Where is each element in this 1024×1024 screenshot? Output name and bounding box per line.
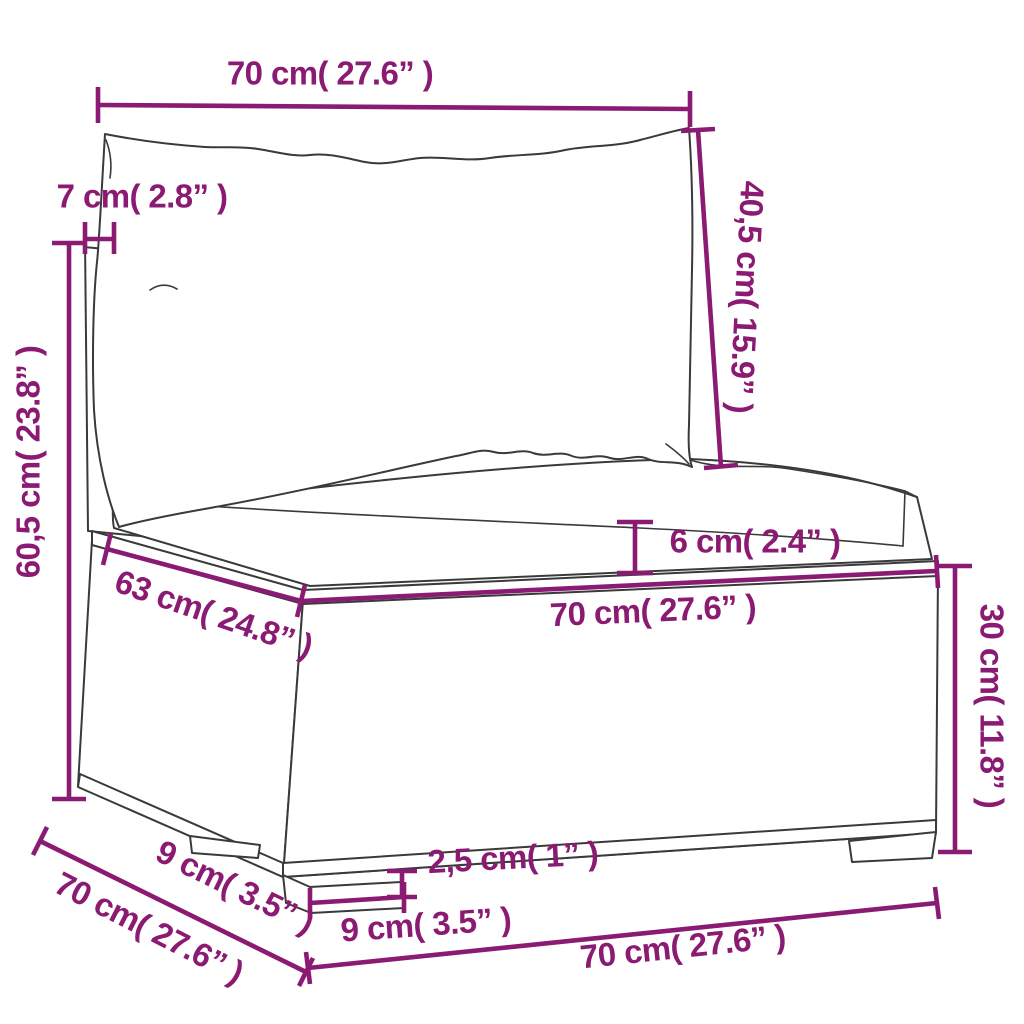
dim-cushion-thickness-label: 6 cm( 2.4” )	[670, 523, 841, 560]
dim-base-bottom-width-label: 70 cm( 27.6” )	[578, 917, 787, 975]
dim-base-height: 30 cm( 11.8” )	[938, 566, 1010, 852]
dim-back-cushion-height: 40,5 cm( 15.9” )	[681, 129, 771, 468]
dim-back-cushion-height-label: 40,5 cm( 15.9” )	[722, 180, 771, 414]
dim-top-width: 70 cm( 27.6” )	[98, 55, 690, 127]
sofa-dimension-drawing: 70 cm( 27.6” ) 40,5 cm( 15.9” ) 7 cm( 2.…	[0, 0, 1024, 1024]
dim-foot-height-label: 2,5 cm( 1” )	[427, 834, 599, 880]
dimension-diagram: 70 cm( 27.6” ) 40,5 cm( 15.9” ) 7 cm( 2.…	[0, 0, 1024, 1024]
dim-total-height: 60,5 cm( 23.8” )	[10, 243, 86, 799]
dim-base-height-label: 30 cm( 11.8” )	[973, 604, 1010, 808]
dim-back-post-depth-label: 7 cm( 2.8” )	[57, 178, 228, 215]
dim-top-width-label: 70 cm( 27.6” )	[227, 55, 433, 92]
dim-total-height-label: 60,5 cm( 23.8” )	[10, 346, 47, 579]
